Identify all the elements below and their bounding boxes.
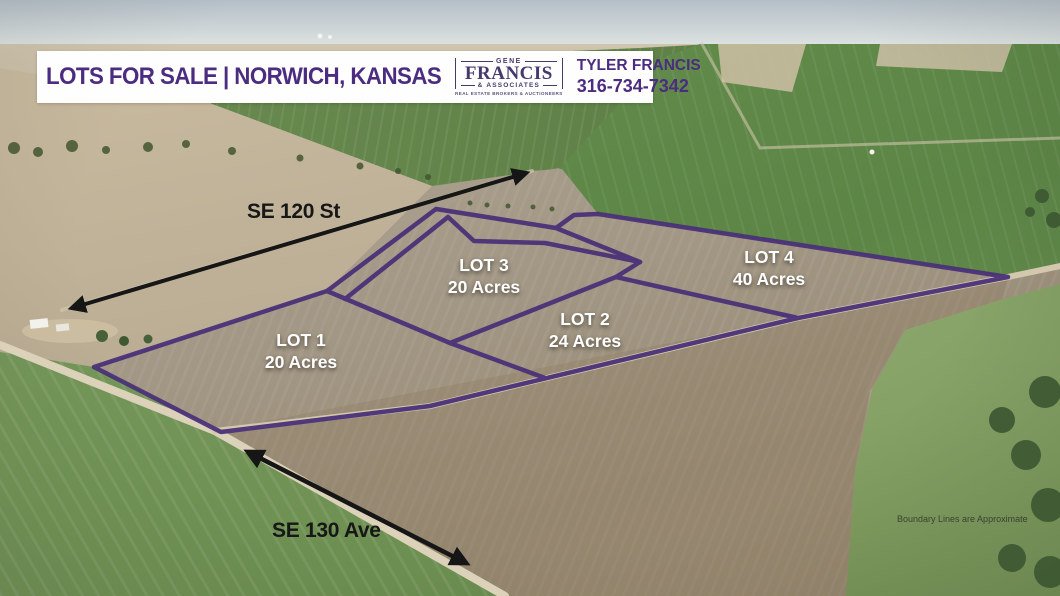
- logo-tagline: REAL ESTATE BROKERS & AUCTIONEERS: [455, 91, 563, 96]
- logo-name-text: FRANCIS: [461, 65, 557, 82]
- lot-4-name: LOT 4: [733, 246, 805, 268]
- agent-name: TYLER FRANCIS: [577, 56, 701, 75]
- road-far: [702, 44, 1060, 148]
- lot-3-size: 20 Acres: [448, 276, 520, 298]
- logo-rule: [461, 85, 475, 86]
- header-banner: LOTS FOR SALE | NORWICH, KANSAS GENE FRA…: [37, 51, 653, 103]
- boundary-disclaimer: Boundary Lines are Approximate: [897, 514, 1028, 524]
- logo-rule: [525, 61, 557, 62]
- lots-for-sale-flyer: SE 120 St SE 130 Ave LOT 1 20 Acres LOT …: [0, 0, 1060, 596]
- farmstead: [22, 318, 153, 346]
- lot-3-name: LOT 3: [448, 254, 520, 276]
- lot-2-size: 24 Acres: [549, 330, 621, 352]
- road-label-se-130-ave: SE 130 Ave: [272, 519, 381, 543]
- road-label-se-120-st: SE 120 St: [247, 200, 340, 224]
- lot-2-name: LOT 2: [549, 308, 621, 330]
- logo-suffix-text: & ASSOCIATES: [478, 82, 540, 89]
- lot-1-size: 20 Acres: [265, 351, 337, 373]
- agent-contact: TYLER FRANCIS 316-734-7342: [577, 56, 701, 98]
- flyer-title: LOTS FOR SALE | NORWICH, KANSAS: [46, 63, 441, 91]
- road-se-130-ave: [0, 345, 505, 596]
- lot-1-name: LOT 1: [265, 329, 337, 351]
- lot-label-2: LOT 2 24 Acres: [549, 308, 621, 352]
- lot-label-3: LOT 3 20 Acres: [448, 254, 520, 298]
- trees-bottom-right: [989, 189, 1060, 588]
- lot-4-size: 40 Acres: [733, 268, 805, 290]
- logo-rule: [543, 85, 557, 86]
- lot1-east-divider: [327, 291, 545, 378]
- lot3-lot4-divider: [556, 228, 640, 262]
- gene-francis-logo: GENE FRANCIS & ASSOCIATES REAL ESTATE BR…: [455, 58, 563, 96]
- logo-rule: [461, 61, 493, 62]
- agent-phone: 316-734-7342: [577, 75, 701, 98]
- logo-frame: GENE FRANCIS & ASSOCIATES: [455, 58, 563, 89]
- lot-label-1: LOT 1 20 Acres: [265, 329, 337, 373]
- lot-label-4: LOT 4 40 Acres: [733, 246, 805, 290]
- se-130-ave-arrow: [248, 452, 466, 563]
